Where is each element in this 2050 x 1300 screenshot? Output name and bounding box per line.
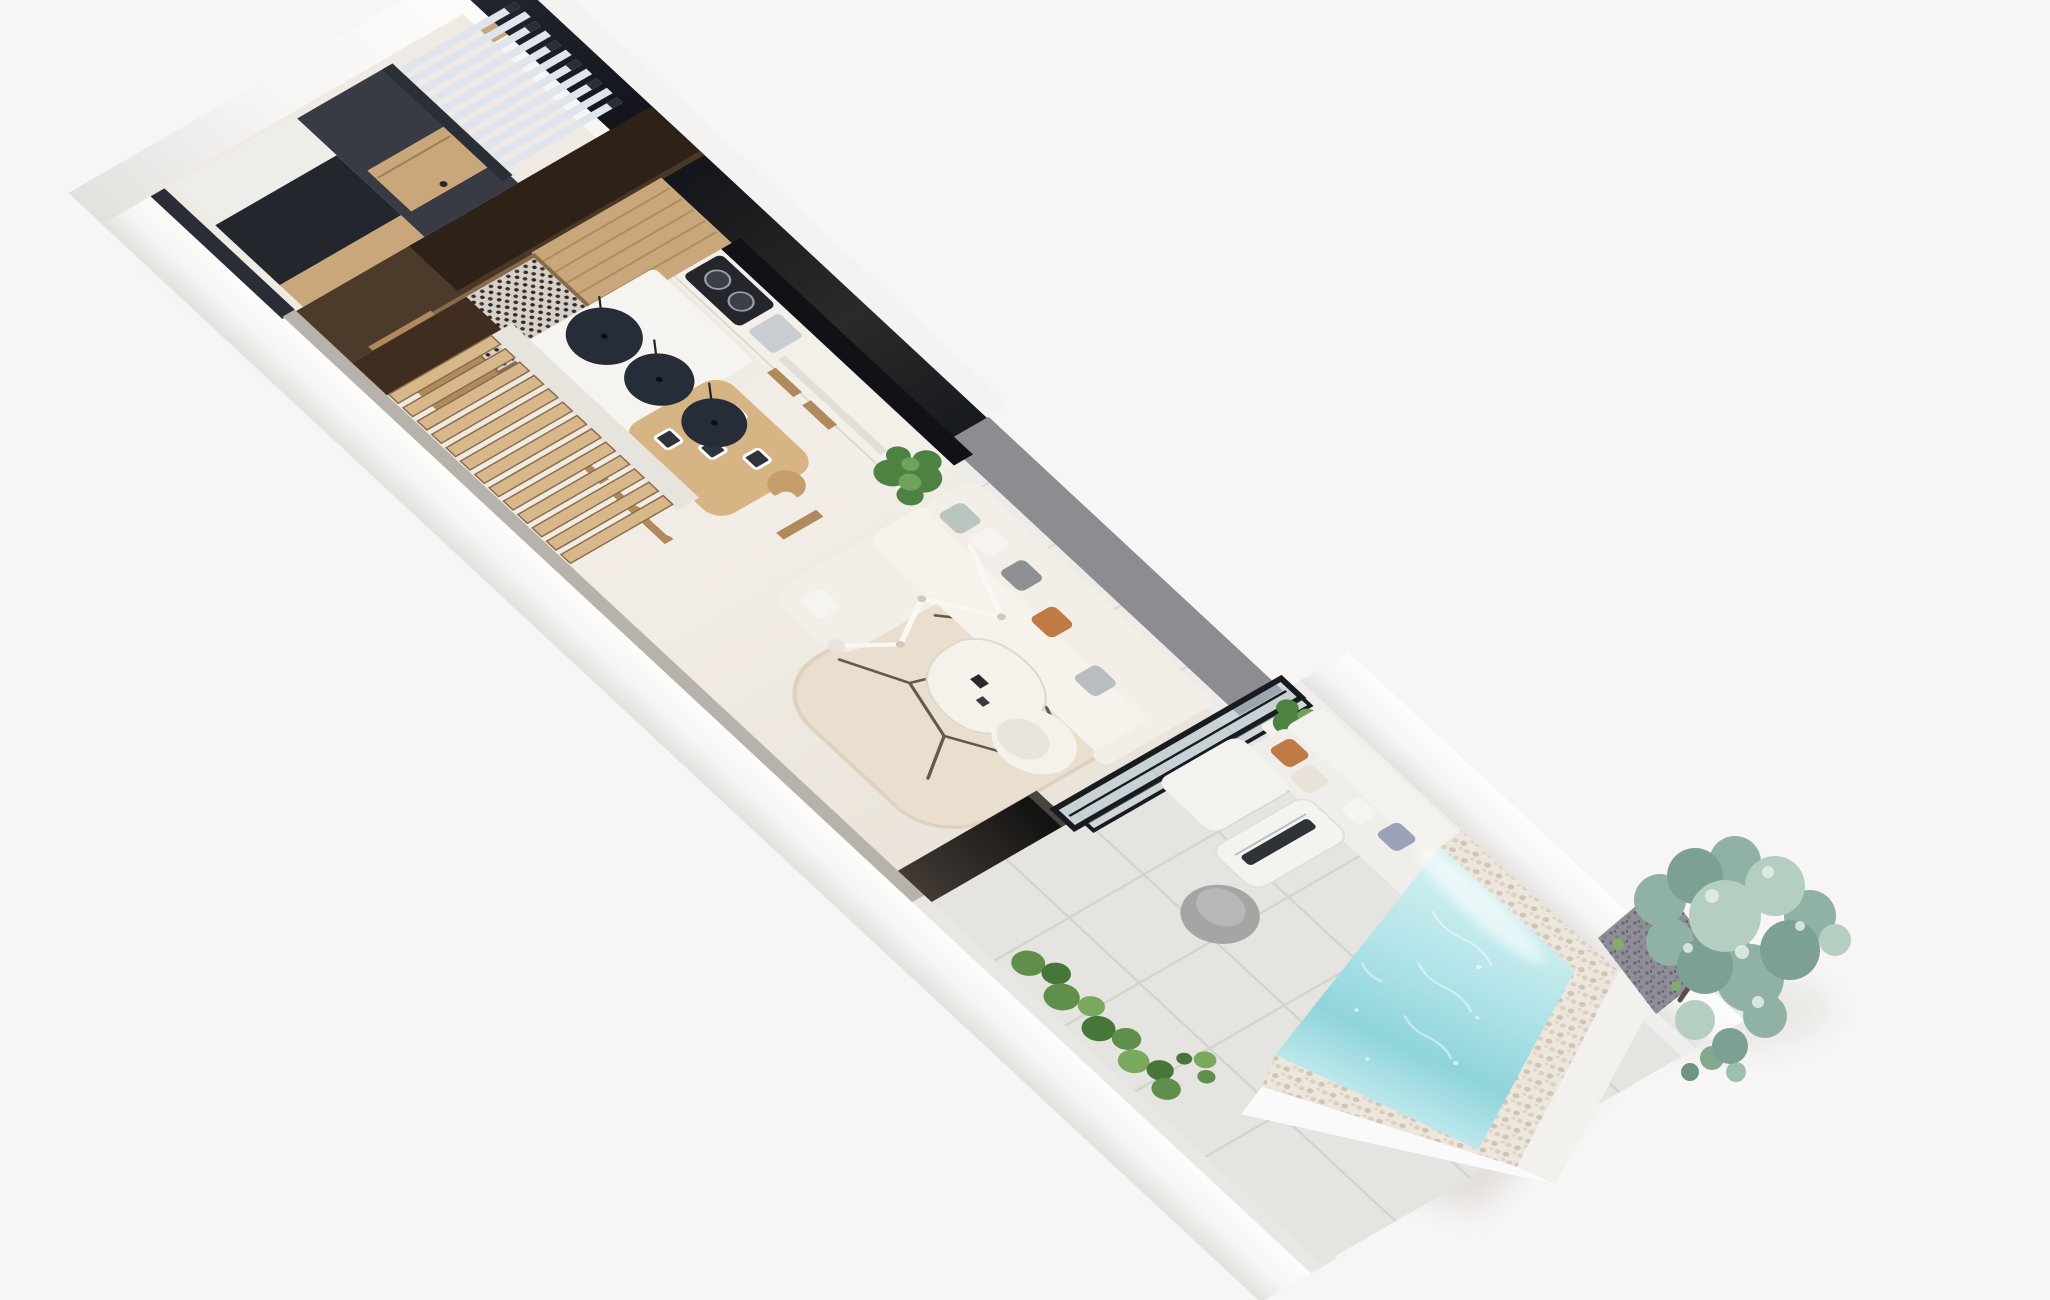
- floor-plan-render: 0: [0, 0, 2050, 1300]
- floor-plan-stage: 0: [0, 0, 2050, 1300]
